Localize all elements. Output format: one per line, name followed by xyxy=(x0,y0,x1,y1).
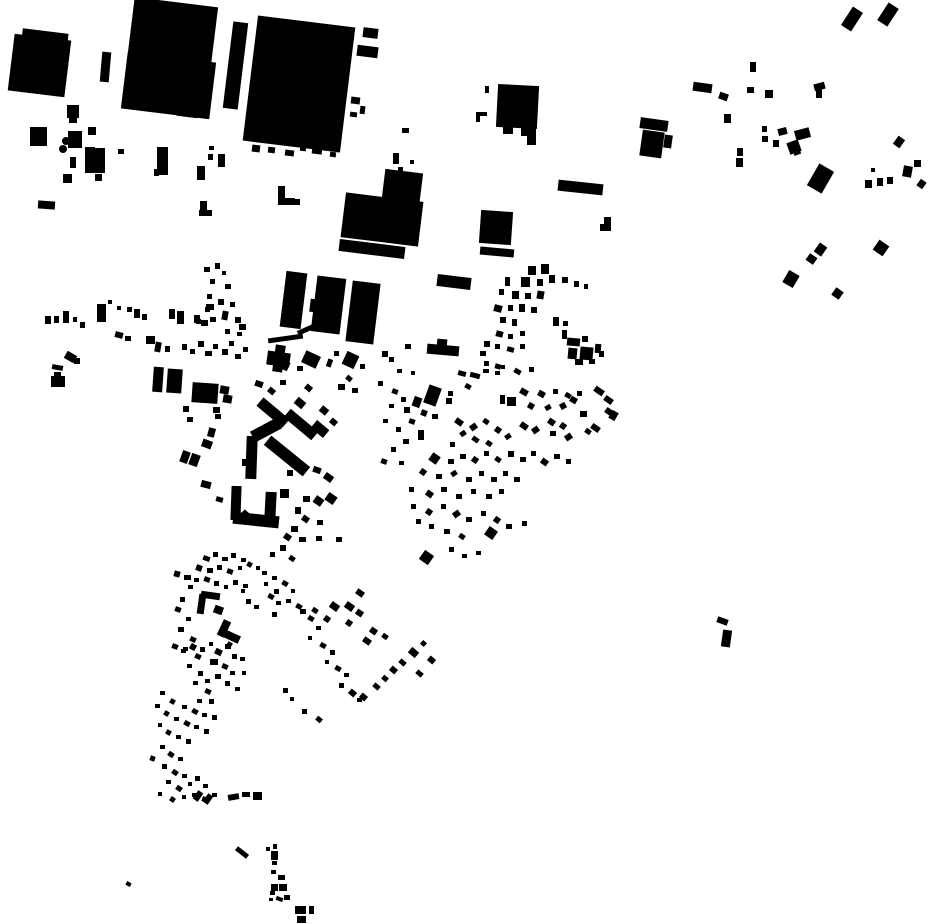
building-footprint xyxy=(271,870,276,874)
building-footprint xyxy=(553,389,558,394)
building-footprint xyxy=(344,673,349,677)
building-footprint xyxy=(70,157,76,168)
building-footprint xyxy=(479,471,484,476)
building-footprint xyxy=(575,359,583,365)
building-footprint xyxy=(240,657,245,661)
building-footprint xyxy=(285,149,295,156)
building-footprint xyxy=(300,146,307,152)
building-footprint xyxy=(63,311,69,323)
building-footprint xyxy=(158,723,162,727)
building-footprint xyxy=(215,263,220,269)
building-footprint xyxy=(507,397,516,406)
building-footprint xyxy=(520,331,525,336)
building-footprint xyxy=(350,112,358,118)
building-footprint xyxy=(765,90,773,98)
building-footprint xyxy=(198,341,204,347)
building-footprint xyxy=(334,351,339,356)
building-footprint xyxy=(302,709,307,714)
building-footprint xyxy=(205,679,210,683)
building-footprint xyxy=(198,671,203,676)
building-footprint xyxy=(169,309,175,319)
building-footprint xyxy=(476,551,481,555)
building-footprint xyxy=(316,536,322,541)
building-footprint xyxy=(213,552,218,557)
building-footprint xyxy=(200,647,205,652)
building-footprint xyxy=(378,381,383,386)
building-footprint xyxy=(69,117,77,123)
building-footprint xyxy=(563,321,568,326)
building-footprint xyxy=(270,891,275,895)
building-footprint xyxy=(193,681,198,685)
building-footprint xyxy=(495,371,500,375)
building-footprint xyxy=(202,713,207,717)
building-footprint xyxy=(272,612,277,617)
building-footprint xyxy=(176,735,181,739)
building-footprint xyxy=(207,568,213,573)
building-footprint xyxy=(330,650,335,655)
building-footprint xyxy=(481,511,486,516)
building-footprint xyxy=(195,776,200,781)
building-footprint xyxy=(264,492,276,521)
building-footprint xyxy=(232,654,237,659)
building-footprint xyxy=(521,127,536,136)
building-footprint xyxy=(762,136,768,142)
building-footprint xyxy=(865,180,872,188)
building-footprint xyxy=(182,795,186,799)
building-footprint xyxy=(402,128,409,133)
building-footprint xyxy=(270,552,275,557)
building-footprint xyxy=(242,459,250,466)
building-footprint xyxy=(450,442,455,447)
building-footprint xyxy=(271,884,278,891)
building-footprint xyxy=(210,659,218,665)
building-footprint xyxy=(230,671,235,675)
building-footprint xyxy=(520,457,526,462)
building-footprint xyxy=(235,687,240,691)
building-footprint xyxy=(95,148,105,173)
building-footprint xyxy=(187,664,192,668)
building-footprint xyxy=(579,346,593,360)
building-footprint xyxy=(508,451,514,457)
building-footprint xyxy=(266,847,270,851)
building-footprint xyxy=(176,103,198,118)
building-footprint xyxy=(165,346,170,352)
building-footprint xyxy=(252,145,261,153)
building-footprint xyxy=(142,314,147,320)
building-footprint xyxy=(224,585,228,589)
building-footprint xyxy=(180,597,185,602)
building-footprint xyxy=(512,319,517,326)
building-footprint xyxy=(550,431,556,436)
building-footprint xyxy=(210,279,215,284)
building-footprint xyxy=(264,582,268,586)
building-footprint xyxy=(531,451,536,456)
building-footprint xyxy=(230,302,235,307)
building-footprint xyxy=(562,330,567,339)
building-footprint xyxy=(154,169,159,176)
building-footprint xyxy=(203,784,208,788)
building-footprint xyxy=(213,344,218,349)
building-footprint xyxy=(51,376,65,387)
building-footprint xyxy=(278,198,295,205)
building-footprint xyxy=(219,385,229,394)
building-footprint xyxy=(499,289,504,295)
building-footprint xyxy=(501,365,505,369)
building-footprint xyxy=(325,660,329,664)
building-footprint xyxy=(194,578,199,582)
building-footprint xyxy=(446,398,452,404)
building-footprint xyxy=(393,153,399,164)
building-footprint xyxy=(125,336,131,341)
building-footprint xyxy=(194,725,199,729)
building-footprint xyxy=(299,537,306,542)
building-footprint xyxy=(466,477,472,482)
building-footprint xyxy=(127,307,132,312)
building-footprint xyxy=(403,439,409,444)
building-footprint xyxy=(268,147,276,154)
building-footprint xyxy=(197,699,202,703)
building-footprint xyxy=(409,487,414,492)
building-footprint xyxy=(199,210,212,216)
building-footprint xyxy=(300,609,306,614)
building-footprint xyxy=(312,147,323,154)
building-footprint xyxy=(436,474,442,479)
building-footprint xyxy=(152,367,164,393)
building-footprint xyxy=(736,158,743,167)
building-footprint xyxy=(466,517,472,522)
building-footprint xyxy=(274,589,279,594)
building-footprint xyxy=(235,354,241,359)
building-footprint xyxy=(330,152,337,158)
building-footprint xyxy=(291,526,298,532)
building-footprint xyxy=(295,906,306,914)
building-footprint xyxy=(146,336,155,344)
building-footprint xyxy=(217,565,222,570)
building-footprint xyxy=(178,757,183,761)
building-footprint xyxy=(360,364,365,369)
building-footprint xyxy=(242,671,246,675)
building-footprint xyxy=(484,451,489,456)
building-footprint xyxy=(166,369,183,394)
building-footprint xyxy=(108,300,112,304)
building-footprint xyxy=(462,554,467,558)
building-footprint xyxy=(254,605,259,609)
building-footprint xyxy=(531,307,537,313)
building-footprint xyxy=(197,166,205,180)
building-footprint xyxy=(218,154,225,167)
building-footprint xyxy=(291,589,295,593)
building-footprint xyxy=(209,642,213,646)
building-footprint xyxy=(480,351,486,356)
building-footprint xyxy=(773,140,779,147)
round-structure-footprint xyxy=(59,145,67,153)
building-footprint xyxy=(184,575,191,580)
building-footprint xyxy=(479,210,513,245)
building-footprint xyxy=(286,599,291,603)
figure-ground-map xyxy=(0,0,930,924)
building-footprint xyxy=(214,581,219,586)
building-footprint xyxy=(360,106,366,115)
building-footprint xyxy=(528,266,536,275)
building-footprint xyxy=(747,87,754,93)
building-footprint xyxy=(762,126,767,132)
building-footprint xyxy=(30,127,47,146)
building-footprint xyxy=(177,311,184,324)
building-footprint xyxy=(527,136,536,145)
building-footprint xyxy=(206,304,214,310)
building-footprint xyxy=(241,558,246,562)
building-footprint xyxy=(508,305,513,311)
building-footprint xyxy=(269,898,273,901)
building-footprint xyxy=(128,0,218,63)
building-footprint xyxy=(201,320,208,326)
building-footprint xyxy=(166,780,171,784)
building-footprint xyxy=(222,349,228,355)
building-footprint xyxy=(574,281,579,287)
building-footprint xyxy=(209,699,214,704)
building-footprint xyxy=(341,192,424,246)
building-footprint xyxy=(162,764,167,769)
building-footprint xyxy=(525,293,531,299)
building-footprint xyxy=(338,384,345,390)
building-footprint xyxy=(256,566,260,570)
building-footprint xyxy=(88,127,96,135)
building-footprint xyxy=(500,317,506,323)
building-footprint xyxy=(514,477,520,482)
building-footprint xyxy=(508,334,513,339)
map-background xyxy=(0,0,930,924)
building-footprint xyxy=(225,284,231,289)
building-footprint xyxy=(287,470,293,476)
building-footprint xyxy=(580,411,587,417)
building-footprint xyxy=(283,688,288,693)
building-footprint xyxy=(54,316,59,323)
building-footprint xyxy=(396,427,401,432)
building-footprint xyxy=(243,347,248,352)
building-footprint xyxy=(188,782,192,786)
building-footprint xyxy=(45,316,51,324)
building-footprint xyxy=(95,174,102,181)
building-footprint xyxy=(410,160,414,164)
building-footprint xyxy=(309,906,314,914)
building-footprint xyxy=(639,130,664,159)
building-footprint xyxy=(437,339,448,349)
building-footprint xyxy=(398,167,403,171)
building-footprint xyxy=(520,344,525,349)
building-footprint xyxy=(432,414,438,419)
building-footprint xyxy=(568,348,578,360)
building-footprint xyxy=(382,351,388,357)
building-footprint xyxy=(196,319,201,324)
building-footprint xyxy=(253,792,262,800)
building-footprint xyxy=(351,96,361,104)
building-footprint xyxy=(816,89,822,98)
building-footprint xyxy=(278,875,285,880)
building-footprint xyxy=(500,395,505,404)
building-footprint xyxy=(63,174,72,183)
building-footprint xyxy=(271,851,278,860)
building-footprint xyxy=(389,404,394,408)
building-footprint xyxy=(182,705,187,709)
building-footprint xyxy=(566,459,571,464)
map-viewport[interactable] xyxy=(0,0,930,924)
building-footprint xyxy=(485,86,489,93)
building-footprint xyxy=(519,304,525,312)
building-footprint xyxy=(483,369,489,373)
building-footprint xyxy=(262,571,267,575)
building-footprint xyxy=(280,545,286,551)
building-footprint xyxy=(589,359,595,364)
building-footprint xyxy=(308,636,312,640)
building-footprint xyxy=(399,461,404,465)
building-footprint xyxy=(209,146,214,150)
building-footprint xyxy=(441,504,446,509)
building-footprint xyxy=(38,200,56,209)
building-footprint xyxy=(503,471,508,476)
building-footprint xyxy=(549,275,555,283)
building-footprint xyxy=(121,52,216,119)
building-footprint xyxy=(476,112,480,122)
building-footprint xyxy=(210,317,216,322)
building-footprint xyxy=(85,147,95,173)
building-footprint xyxy=(231,553,236,558)
building-footprint xyxy=(239,324,246,330)
building-footprint xyxy=(212,715,217,720)
building-footprint xyxy=(460,454,466,459)
building-footprint xyxy=(241,589,245,593)
building-footprint xyxy=(174,717,179,721)
building-footprint xyxy=(429,524,434,529)
building-footprint xyxy=(213,407,220,413)
building-footprint xyxy=(486,494,492,499)
building-footprint xyxy=(448,459,454,464)
building-footprint xyxy=(182,344,187,350)
building-footprint xyxy=(495,344,500,349)
building-footprint xyxy=(297,916,306,923)
building-footprint xyxy=(339,683,344,688)
building-footprint xyxy=(218,299,224,305)
building-footprint xyxy=(242,792,250,797)
building-footprint xyxy=(562,277,568,283)
building-footprint xyxy=(316,626,321,630)
building-footprint xyxy=(272,861,277,865)
building-footprint xyxy=(80,322,85,328)
building-footprint xyxy=(54,372,61,377)
building-footprint xyxy=(553,317,559,326)
building-footprint xyxy=(416,519,421,524)
building-footprint xyxy=(449,547,454,552)
building-footprint xyxy=(405,344,411,349)
building-footprint xyxy=(448,391,453,396)
building-footprint xyxy=(401,397,406,402)
building-footprint xyxy=(222,394,232,403)
round-structure-footprint xyxy=(62,137,70,145)
building-footprint xyxy=(336,537,342,542)
building-footprint xyxy=(411,371,415,375)
building-footprint xyxy=(505,277,510,286)
building-footprint xyxy=(877,178,883,186)
building-footprint xyxy=(567,337,581,346)
building-footprint xyxy=(160,691,165,695)
building-footprint xyxy=(418,430,424,440)
building-footprint xyxy=(484,361,489,366)
building-footprint xyxy=(554,454,560,459)
building-footprint xyxy=(235,317,241,323)
building-footprint xyxy=(186,617,191,621)
building-footprint xyxy=(290,697,294,701)
building-footprint xyxy=(887,177,893,184)
building-footprint xyxy=(237,332,242,336)
building-footprint xyxy=(160,745,165,749)
building-footprint xyxy=(238,566,242,570)
building-footprint xyxy=(222,271,226,275)
building-footprint xyxy=(155,704,160,708)
building-footprint xyxy=(737,148,743,156)
building-footprint xyxy=(243,584,248,588)
building-footprint xyxy=(496,84,539,129)
building-footprint xyxy=(229,341,234,346)
building-footprint xyxy=(914,160,921,167)
building-footprint xyxy=(295,507,301,514)
building-footprint xyxy=(158,792,162,796)
building-footprint xyxy=(246,599,251,604)
building-footprint xyxy=(599,351,604,357)
building-footprint xyxy=(245,436,257,479)
building-footprint xyxy=(279,884,287,891)
building-footprint xyxy=(582,336,588,342)
building-footprint xyxy=(506,524,512,529)
building-footprint xyxy=(536,290,544,299)
building-footprint xyxy=(600,224,606,231)
building-footprint xyxy=(233,580,238,585)
building-footprint xyxy=(68,131,82,148)
building-footprint xyxy=(181,649,186,653)
building-footprint xyxy=(272,576,277,580)
building-footprint xyxy=(444,529,450,534)
building-footprint xyxy=(303,496,310,502)
building-footprint xyxy=(117,306,121,310)
building-footprint xyxy=(352,388,358,393)
building-footprint xyxy=(182,774,187,778)
building-footprint xyxy=(207,294,212,299)
building-footprint xyxy=(276,601,281,605)
building-footprint xyxy=(73,317,77,322)
building-footprint xyxy=(204,729,209,734)
building-footprint xyxy=(404,407,410,413)
building-footprint xyxy=(456,494,462,499)
building-footprint xyxy=(273,844,277,849)
building-footprint xyxy=(222,557,228,561)
building-footprint xyxy=(441,487,447,492)
building-footprint xyxy=(577,391,582,396)
building-footprint xyxy=(225,329,230,334)
building-footprint xyxy=(397,369,402,373)
building-footprint xyxy=(280,380,286,385)
building-footprint xyxy=(215,414,221,419)
building-footprint xyxy=(871,168,875,172)
building-footprint xyxy=(391,447,396,452)
building-footprint xyxy=(204,267,210,272)
building-footprint xyxy=(484,341,490,347)
building-footprint xyxy=(187,417,193,422)
building-footprint xyxy=(902,165,913,177)
building-footprint xyxy=(205,351,212,356)
building-footprint xyxy=(537,279,543,286)
building-footprint xyxy=(118,149,124,154)
building-footprint xyxy=(297,366,303,371)
building-footprint xyxy=(522,521,527,526)
building-footprint xyxy=(225,681,230,686)
